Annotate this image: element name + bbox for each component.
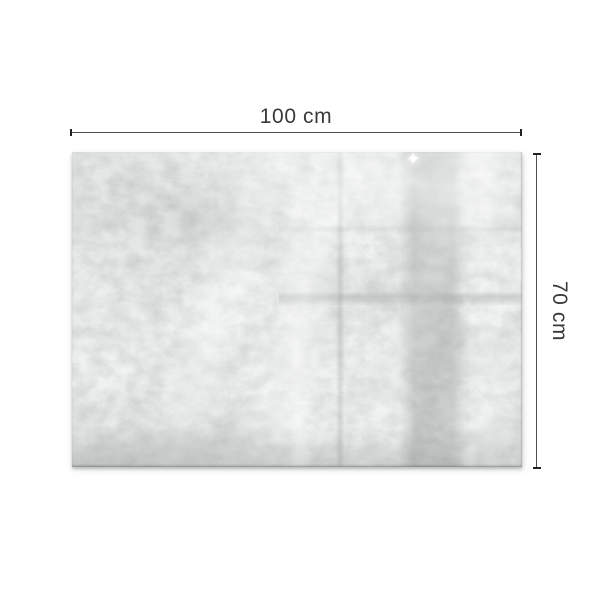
height-dimension-cap-bottom: [533, 467, 541, 469]
height-dimension-cap-top: [533, 153, 541, 155]
width-dimension-label: 100 cm: [71, 105, 521, 129]
height-dimension-line: [536, 154, 537, 468]
height-dimension-label: 70 cm: [547, 281, 571, 341]
board-image: ✦: [72, 152, 522, 467]
width-dimension-cap-right: [520, 129, 522, 136]
width-dimension-cap-left: [70, 129, 72, 136]
concrete-texture: [72, 152, 522, 467]
product-figure: 100 cm: [0, 0, 600, 600]
width-dimension-line: [71, 132, 521, 133]
